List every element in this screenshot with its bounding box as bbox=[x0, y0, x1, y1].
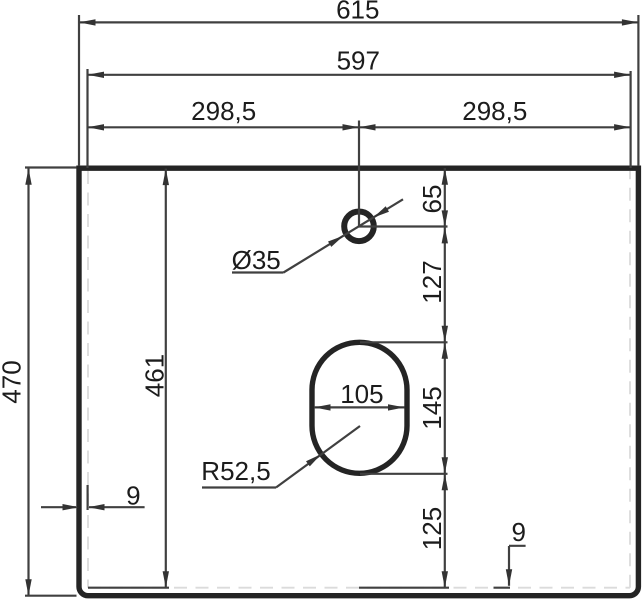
svg-text:145: 145 bbox=[417, 386, 447, 429]
svg-text:9: 9 bbox=[511, 517, 525, 547]
svg-text:125: 125 bbox=[417, 507, 447, 550]
svg-text:9: 9 bbox=[126, 480, 140, 510]
svg-text:470: 470 bbox=[0, 360, 27, 403]
svg-text:127: 127 bbox=[417, 260, 447, 303]
svg-text:597: 597 bbox=[337, 46, 380, 76]
svg-text:298,5: 298,5 bbox=[462, 96, 527, 126]
svg-text:65: 65 bbox=[417, 185, 447, 214]
svg-text:Ø35: Ø35 bbox=[232, 245, 281, 275]
svg-text:461: 461 bbox=[140, 354, 170, 397]
svg-text:615: 615 bbox=[336, 0, 379, 25]
svg-text:105: 105 bbox=[340, 379, 383, 409]
svg-text:298,5: 298,5 bbox=[191, 96, 256, 126]
svg-text:R52,5: R52,5 bbox=[201, 456, 270, 486]
